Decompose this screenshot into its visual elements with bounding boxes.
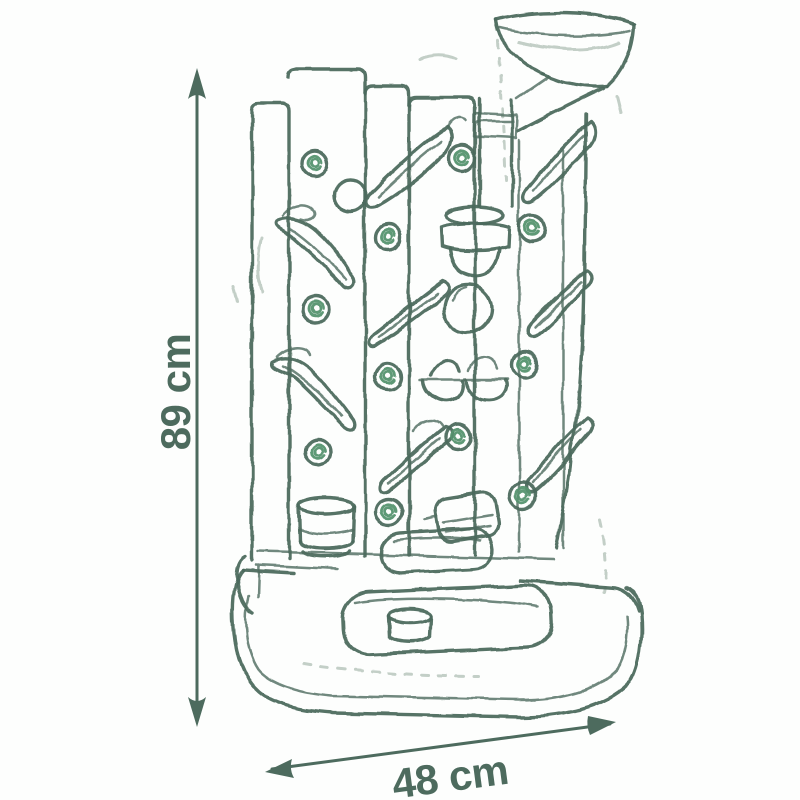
peg-ring — [305, 439, 331, 465]
cup-lower — [299, 498, 353, 556]
basin — [232, 556, 641, 717]
product-sketch — [232, 13, 641, 717]
chute-groove — [534, 135, 585, 190]
funnel-bottom — [544, 74, 607, 87]
chute — [272, 358, 355, 429]
chute-lip — [414, 420, 442, 432]
chute — [527, 417, 593, 492]
funnel-rim — [496, 13, 634, 24]
roller-axle — [424, 516, 437, 519]
ball — [444, 285, 492, 333]
faint-stroke — [304, 664, 478, 676]
scoop — [466, 380, 506, 400]
funnel-rim-inner — [500, 28, 630, 36]
scoop-handle — [468, 357, 497, 370]
peg-ring — [375, 364, 401, 390]
pegs — [302, 145, 545, 525]
peg-hole — [334, 180, 366, 212]
chute-groove — [535, 283, 581, 327]
peg-ring — [303, 296, 329, 322]
plank — [252, 103, 289, 560]
basin-tray — [342, 584, 553, 655]
tray-outline — [380, 528, 494, 574]
faint-stroke — [617, 96, 621, 112]
peg-spiral — [381, 229, 395, 243]
peg-spiral — [311, 444, 325, 458]
faint-stroke — [497, 24, 505, 180]
peg — [303, 296, 329, 322]
plank — [409, 98, 475, 554]
dimension-diagram: 89 cm 48 cm — [0, 0, 800, 800]
peg-spiral — [455, 150, 469, 164]
width-dimension: 48 cm — [265, 716, 616, 800]
chute-lip — [277, 348, 309, 357]
peg-spiral — [516, 488, 530, 502]
funnel-spout — [517, 77, 549, 99]
peg-ring — [449, 145, 475, 171]
peg-ring — [375, 224, 401, 250]
cup-rim — [299, 498, 353, 514]
basin-rear-rim — [243, 570, 294, 573]
peg-ring — [376, 499, 402, 525]
peg — [375, 224, 401, 250]
tray-pill — [380, 528, 494, 574]
peg — [449, 145, 475, 171]
peg-spiral — [518, 356, 532, 370]
peg-spiral — [308, 155, 322, 169]
roller-outline — [434, 491, 500, 544]
basin-tray-line — [355, 599, 538, 607]
product-sketch-canvas: 89 cm 48 cm — [0, 0, 800, 800]
faint-stroke — [233, 286, 237, 302]
cylinder-rim — [389, 609, 431, 623]
peg-spiral — [451, 429, 465, 443]
scoop-handle — [431, 361, 459, 376]
peg-ring — [519, 215, 545, 241]
chute-lip — [447, 117, 466, 127]
peg — [302, 150, 328, 176]
arrow-up-icon — [188, 68, 206, 99]
width-dimension-label: 48 cm — [389, 746, 511, 800]
peg-ring — [510, 483, 536, 509]
chute-groove — [389, 439, 439, 483]
arrow-right-icon — [587, 716, 616, 735]
peg — [376, 499, 402, 525]
basin-left-foot — [236, 556, 253, 613]
peg-ring — [445, 424, 471, 450]
peg-ring — [302, 150, 328, 176]
faint-stroke — [600, 520, 606, 592]
basin-outline — [232, 570, 641, 717]
peg — [445, 424, 471, 450]
arrow-down-icon — [188, 697, 206, 727]
peg — [512, 351, 538, 377]
peg-ring — [512, 351, 538, 377]
wall-right-edge — [556, 114, 586, 548]
height-dimension: 89 cm — [152, 68, 206, 727]
basin-inner-rim — [245, 597, 627, 700]
peg — [519, 215, 545, 241]
height-dimension-label: 89 cm — [152, 334, 199, 451]
peg-spiral — [525, 220, 539, 234]
cup-band — [300, 530, 352, 535]
peg — [305, 439, 331, 465]
peg — [510, 483, 536, 509]
chute-groove — [533, 429, 581, 483]
peg — [375, 364, 401, 390]
funnel-spout — [518, 88, 603, 131]
peg-spiral — [381, 369, 395, 383]
faint-stroke — [520, 42, 620, 50]
peg-spiral — [309, 301, 323, 315]
scoop — [423, 381, 463, 401]
arrow-left-icon — [265, 759, 294, 778]
faint-stroke — [420, 55, 456, 59]
faint-stroke — [258, 238, 262, 293]
peg-spiral — [382, 504, 396, 518]
scoop-pair — [420, 357, 507, 401]
